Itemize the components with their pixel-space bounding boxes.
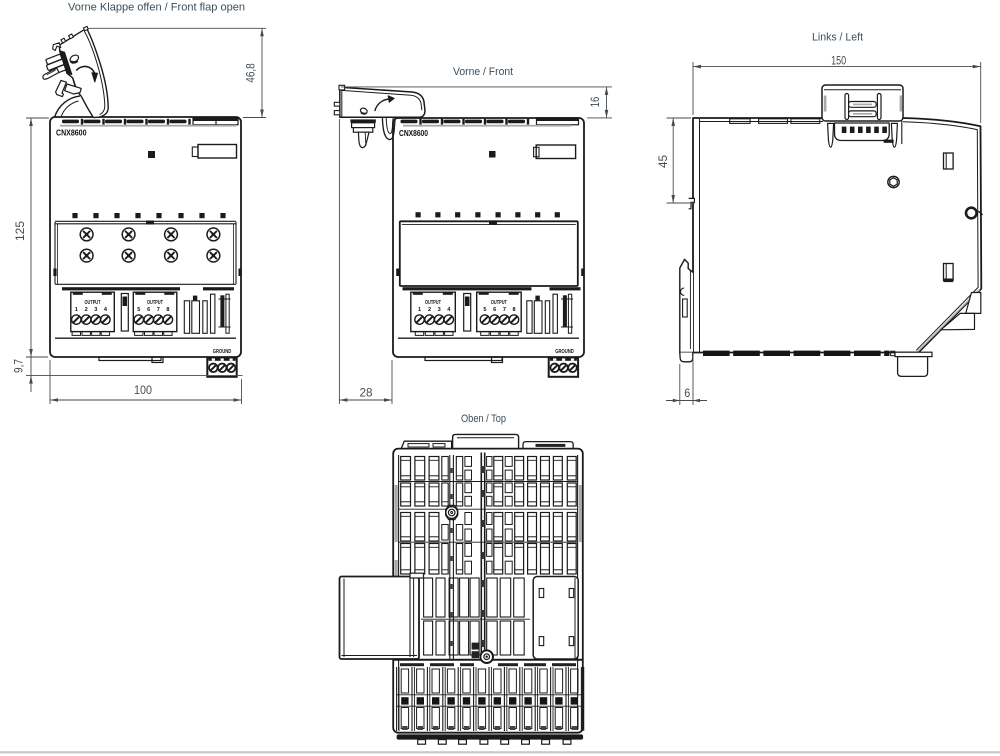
svg-text:CNX8600: CNX8600 [399,128,428,138]
svg-text:OUTPUT: OUTPUT [425,300,442,306]
svg-text:9,7: 9,7 [14,359,26,373]
svg-text:150: 150 [831,56,846,68]
svg-text:3: 3 [438,307,441,313]
svg-text:GROUND: GROUND [213,349,232,355]
svg-text:6: 6 [684,388,690,400]
svg-text:16: 16 [590,97,602,108]
svg-text:OUTPUT: OUTPUT [85,300,102,306]
svg-text:100: 100 [134,385,152,397]
svg-text:46,8: 46,8 [246,63,258,83]
svg-text:Vorne / Front: Vorne / Front [453,66,513,78]
svg-text:Vorne Klappe offen / Front fla: Vorne Klappe offen / Front flap open [68,2,245,14]
svg-text:Oben / Top: Oben / Top [461,413,506,425]
svg-text:3: 3 [94,307,97,313]
svg-text:28: 28 [360,388,373,400]
svg-text:6: 6 [493,307,496,313]
svg-text:1: 1 [418,307,421,313]
svg-text:45: 45 [658,155,670,168]
svg-text:2: 2 [85,307,88,313]
svg-text:6: 6 [147,307,150,313]
svg-text:7: 7 [157,307,160,313]
svg-text:2: 2 [428,307,431,313]
svg-text:Links / Left: Links / Left [812,32,863,44]
svg-text:GROUND: GROUND [555,349,574,355]
svg-text:CNX8600: CNX8600 [56,128,87,138]
svg-text:OUTPUT: OUTPUT [491,300,508,306]
svg-text:5: 5 [137,307,140,313]
svg-text:OUTPUT: OUTPUT [147,300,164,306]
svg-text:8: 8 [512,307,515,313]
svg-text:7: 7 [503,307,506,313]
svg-text:1: 1 [75,307,78,313]
svg-text:8: 8 [166,307,169,313]
svg-text:5: 5 [483,307,486,313]
svg-text:125: 125 [15,221,27,241]
